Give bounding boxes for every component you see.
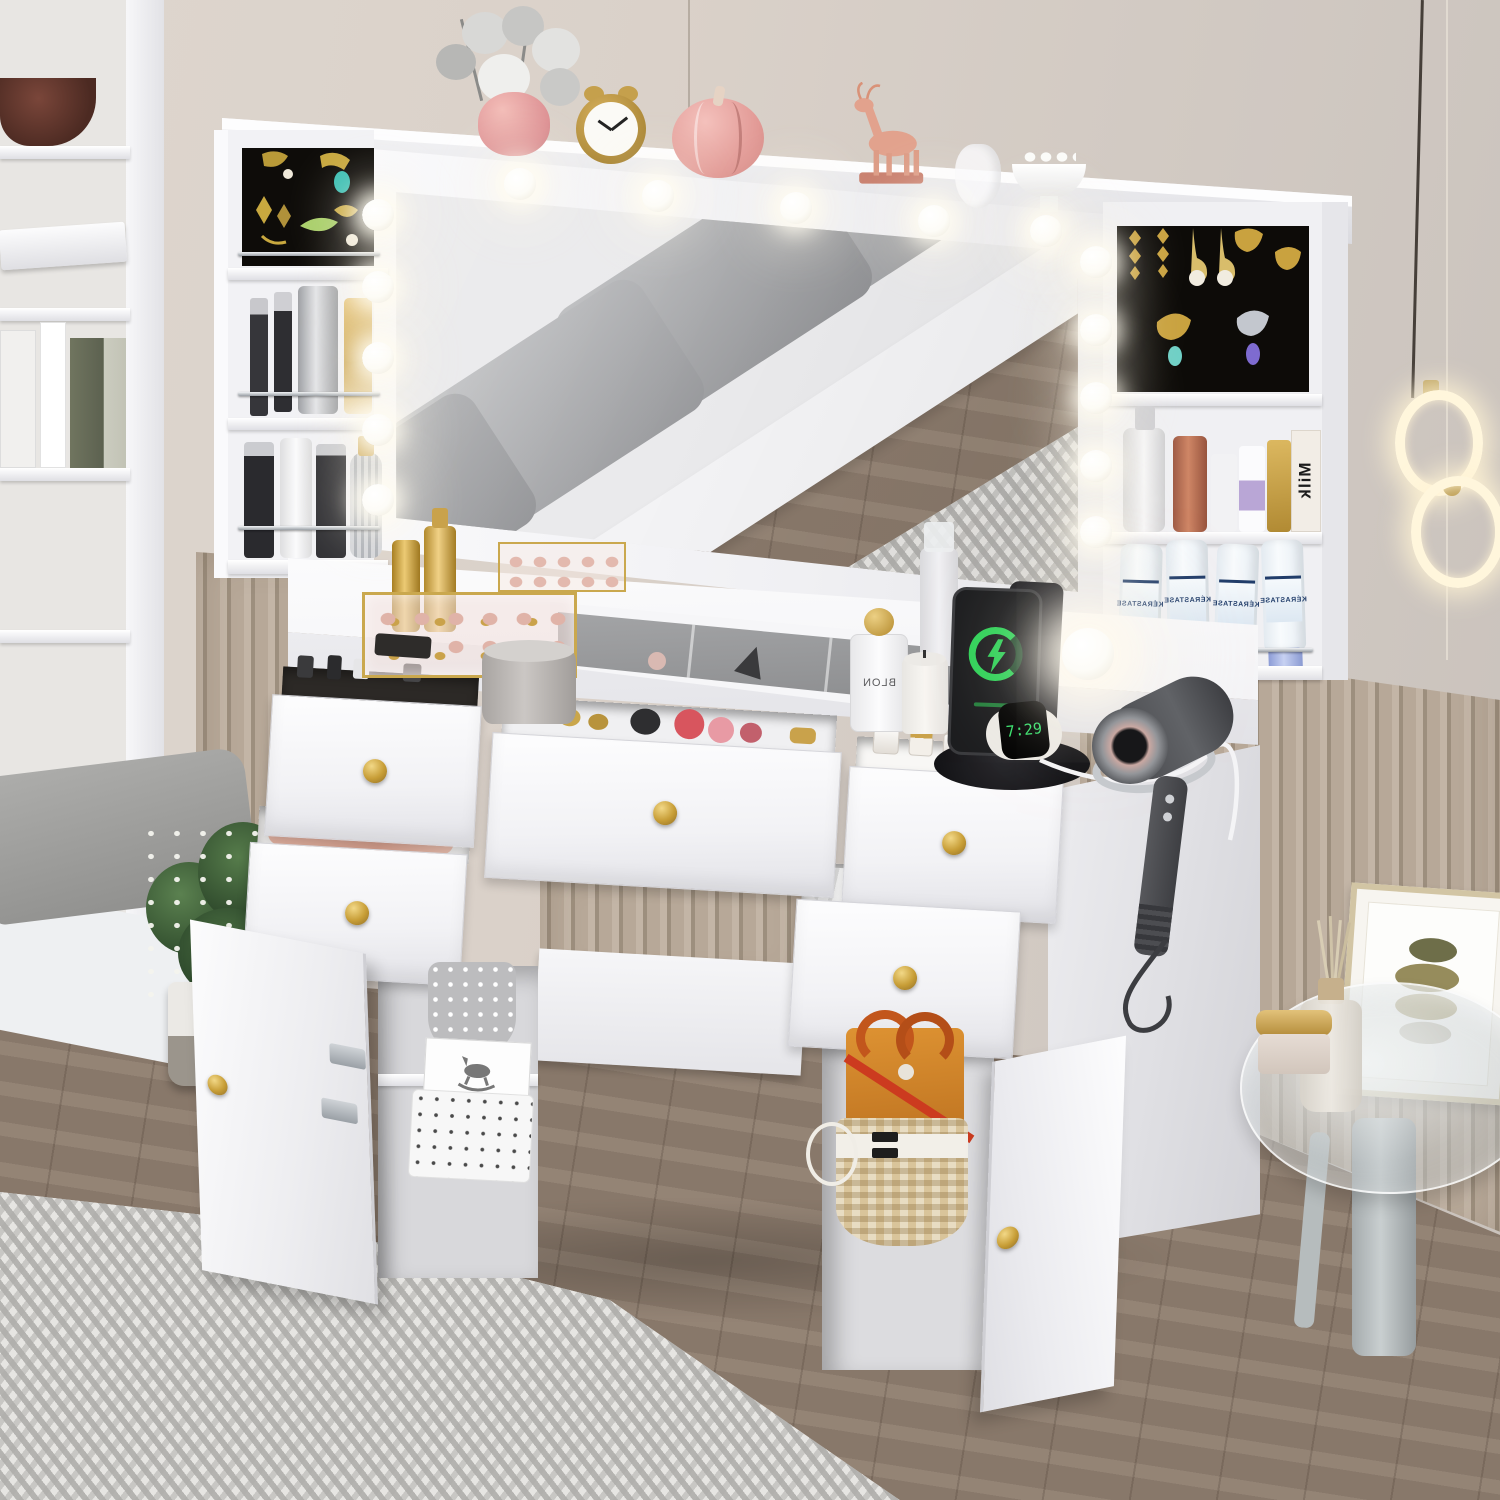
dark-cosmetic-item [297,655,314,678]
dark-cosmetic-item [327,655,342,680]
jewelry-niche-left [242,148,374,266]
jewelry-gold-left [242,148,374,266]
gold-earring [256,196,272,224]
teal-drop [1168,346,1182,366]
gold-perfume [1267,440,1291,532]
drawer-knob[interactable] [652,800,677,825]
bookshelf-shelf [0,468,130,481]
pendant-cord [1411,0,1424,398]
clock-face [584,102,638,156]
hair-dryer [1086,680,1246,1040]
led-bulb [1080,246,1112,278]
organizer-contents [504,552,620,588]
silver-ginkgo-earring [1237,310,1269,336]
drawer-knob[interactable] [362,758,387,783]
basket-clasp [872,1148,898,1158]
gold-bracelet [320,153,350,170]
book-spine [0,330,36,468]
shelf-rail [238,392,380,396]
pearl [346,234,358,246]
red-lipstick [673,708,705,740]
dryer-cable [1106,940,1226,1040]
diffuser-reed [1317,920,1330,986]
gold-leaf [334,205,358,217]
door-hinge [329,1043,366,1070]
candle-wick [923,650,926,658]
black-spray-bottle [244,442,274,558]
bag-handle [896,1012,954,1068]
deer-head [854,98,873,112]
leaf-vine [300,218,338,231]
drawer-knob[interactable] [941,830,966,855]
pumpkin-ridge [720,102,742,174]
pearl-drop [1189,270,1205,286]
pump-bottle [1123,428,1165,532]
pearl [283,169,293,179]
led-bulb [642,180,674,212]
white-pedestal-bowl [1012,150,1086,214]
center-stretcher-panel [533,948,807,1075]
led-bulb [1080,450,1112,482]
bowl-foot [1040,196,1058,212]
bowl-cup [1012,164,1086,198]
gold-compact [588,713,609,730]
bookshelf-shelf [0,630,130,643]
led-bulb [504,168,536,200]
gold-lid-candle-jar [1256,1010,1332,1076]
polka-dot-storage-bin [408,1089,534,1183]
blossom [540,68,580,106]
kerastase-bottle: KÉRASTASE [1261,539,1307,678]
vanity-glow-lamp [1062,628,1114,680]
drawer-knob[interactable] [344,900,369,925]
jar-lid [484,640,574,662]
smartwatch-charging: 7:29 [986,700,1062,766]
woven-basket [836,1118,968,1246]
shelf-rail [238,252,380,256]
led-bulb [362,484,394,516]
gold-chain [262,236,286,243]
book-spine [70,338,126,468]
blossom [532,28,580,72]
basket-cord [806,1122,858,1186]
left-cabinet-door-open[interactable] [190,919,378,1304]
tray-dark-compact [374,633,431,659]
jar-gold-lid [1256,1010,1332,1036]
drawer-top-left[interactable] [264,694,482,848]
perfume-bottle-blon: BLON [850,634,908,732]
white-tray-stack [0,222,127,271]
deer-leg [904,153,909,175]
led-bulb [362,271,394,303]
bookshelf-shelf [0,146,130,159]
watch-face: 7:29 [997,700,1051,761]
gold-perfume-cap [432,508,448,528]
watch-time-text: 7:29 [1005,719,1043,741]
left-storage-tower [214,130,374,578]
led-bulb [362,342,394,374]
bottle-label: KÉRASTASE [1265,575,1302,622]
white-candle [902,658,948,734]
led-bulb [1080,314,1112,346]
bookshelf-shelf [0,308,130,321]
deer-leg [914,150,919,176]
glass-ornament [955,144,1001,208]
black-puff [630,708,661,736]
door-knob[interactable] [207,1073,228,1097]
blossom [462,12,508,54]
deer-figurine [840,82,936,186]
copper-spray [1173,436,1207,532]
gray-jar [482,648,576,724]
clear-cap [924,522,954,552]
pumpkin-ridge [694,102,716,174]
rose-item [739,722,762,743]
pumpkin-stem [712,85,725,106]
led-bulb [1030,215,1062,247]
basket-clasp [872,1132,898,1142]
led-bulb [918,205,950,237]
clock-hand-minute [611,117,629,132]
dryer-button [1163,812,1173,822]
gold-earring [277,204,291,228]
perfume-gold-sphere-cap [864,608,894,636]
white-tube [1211,454,1237,532]
brand-text: KÉRASTASE [1260,596,1307,604]
art-stone [1408,937,1458,964]
pink-pumpkin [672,98,764,178]
right-cabinet-door-open[interactable] [980,1036,1126,1413]
turquoise-drop [334,171,350,193]
tower-shelf [1103,394,1322,406]
led-bulb [1080,382,1112,414]
bag-button [898,1064,914,1080]
drawer-knob[interactable] [892,965,917,990]
door-hinge [321,1097,358,1124]
metal-basket-organizer [498,542,626,592]
gold-brooch [262,151,288,166]
perfume-label-text: BLON [862,677,896,689]
side-table [1240,880,1500,1360]
jewelry-niche-right [1117,226,1309,392]
milk-label: Milk [1296,462,1316,499]
mascara-tube [250,298,268,416]
dryer-face [1092,708,1168,784]
jar-body [1258,1034,1330,1074]
makeup-brush [734,642,770,679]
charging-bolt-icon [985,639,1008,674]
led-bulb [362,199,394,231]
gold-item [789,727,816,744]
book-spine [40,322,66,468]
rocking-horse-icon [450,1050,504,1097]
light-ring [1411,476,1500,588]
led-bulb [780,192,812,224]
dryer-button [1165,794,1175,804]
door-knob[interactable] [996,1225,1019,1251]
purple-drop [1246,343,1260,365]
gold-floral-earring [1157,313,1191,340]
pearl-drop [1217,270,1233,286]
led-bulb [362,414,394,446]
deer-leg [874,150,879,176]
gold-earrings [1129,228,1301,280]
jewelry-gold-right [1117,226,1309,392]
decorative-bowl [0,78,96,146]
milk-makeup-box: Milk [1291,430,1321,532]
shelf-rail [238,526,380,530]
drawer-center[interactable] [484,732,842,898]
led-bulb [1080,516,1112,548]
makeup-item [648,652,666,670]
lavender-label-bottle [1239,446,1265,532]
alarm-clock [576,86,648,164]
pink-vase [478,92,550,156]
dryer-handle [1133,775,1189,958]
pink-lipstick [707,716,734,743]
pump-top [1135,406,1155,430]
deer-leg [886,153,891,175]
deer-antlers [858,83,880,99]
pendant-ring-light [1385,380,1500,590]
bedroom-vanity-scene: Milk KÉRASTASE KÉRASTASE KÉRASTASE KÉRAS… [0,0,1500,1500]
